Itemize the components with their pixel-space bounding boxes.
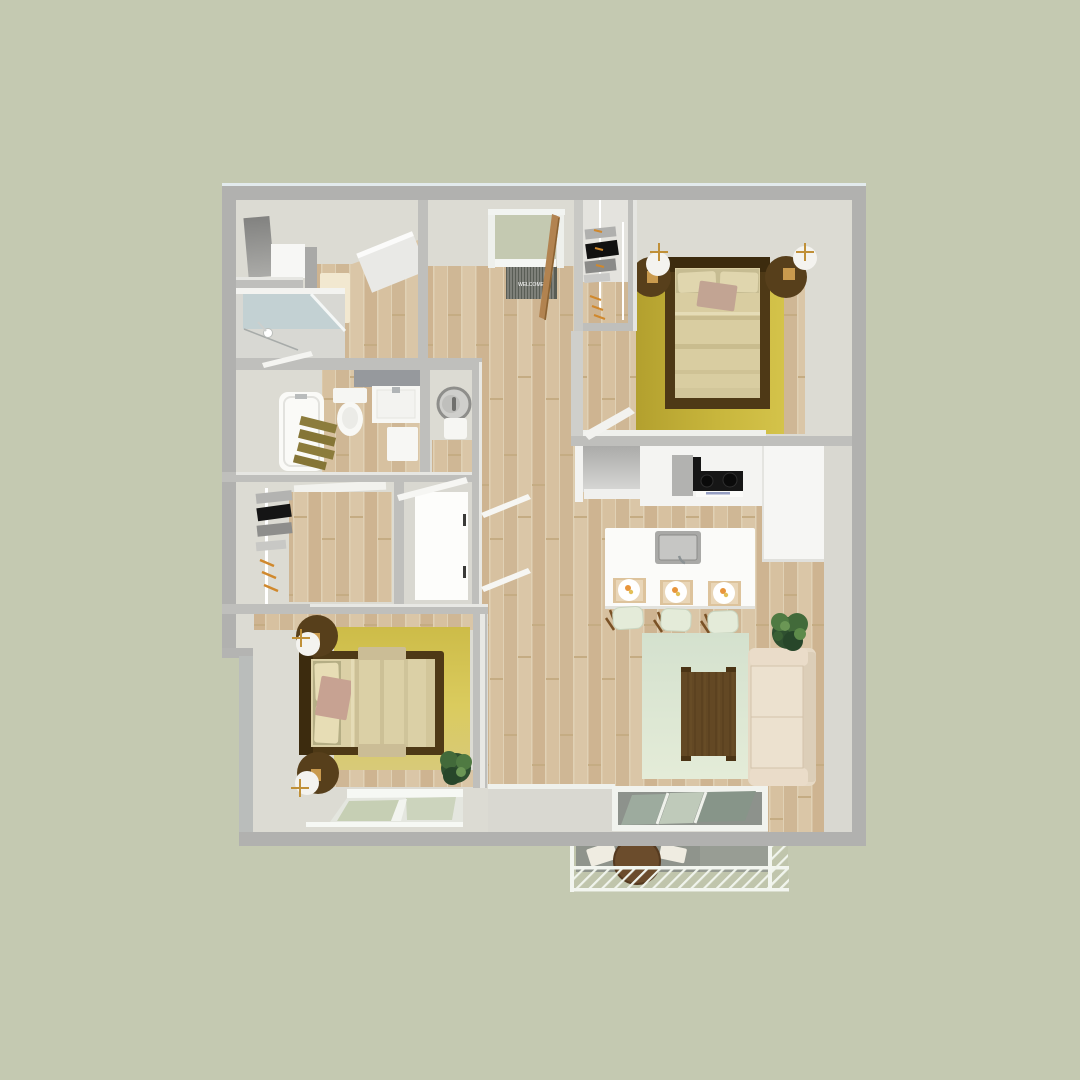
svg-text:WELCOME: WELCOME: [518, 282, 544, 288]
